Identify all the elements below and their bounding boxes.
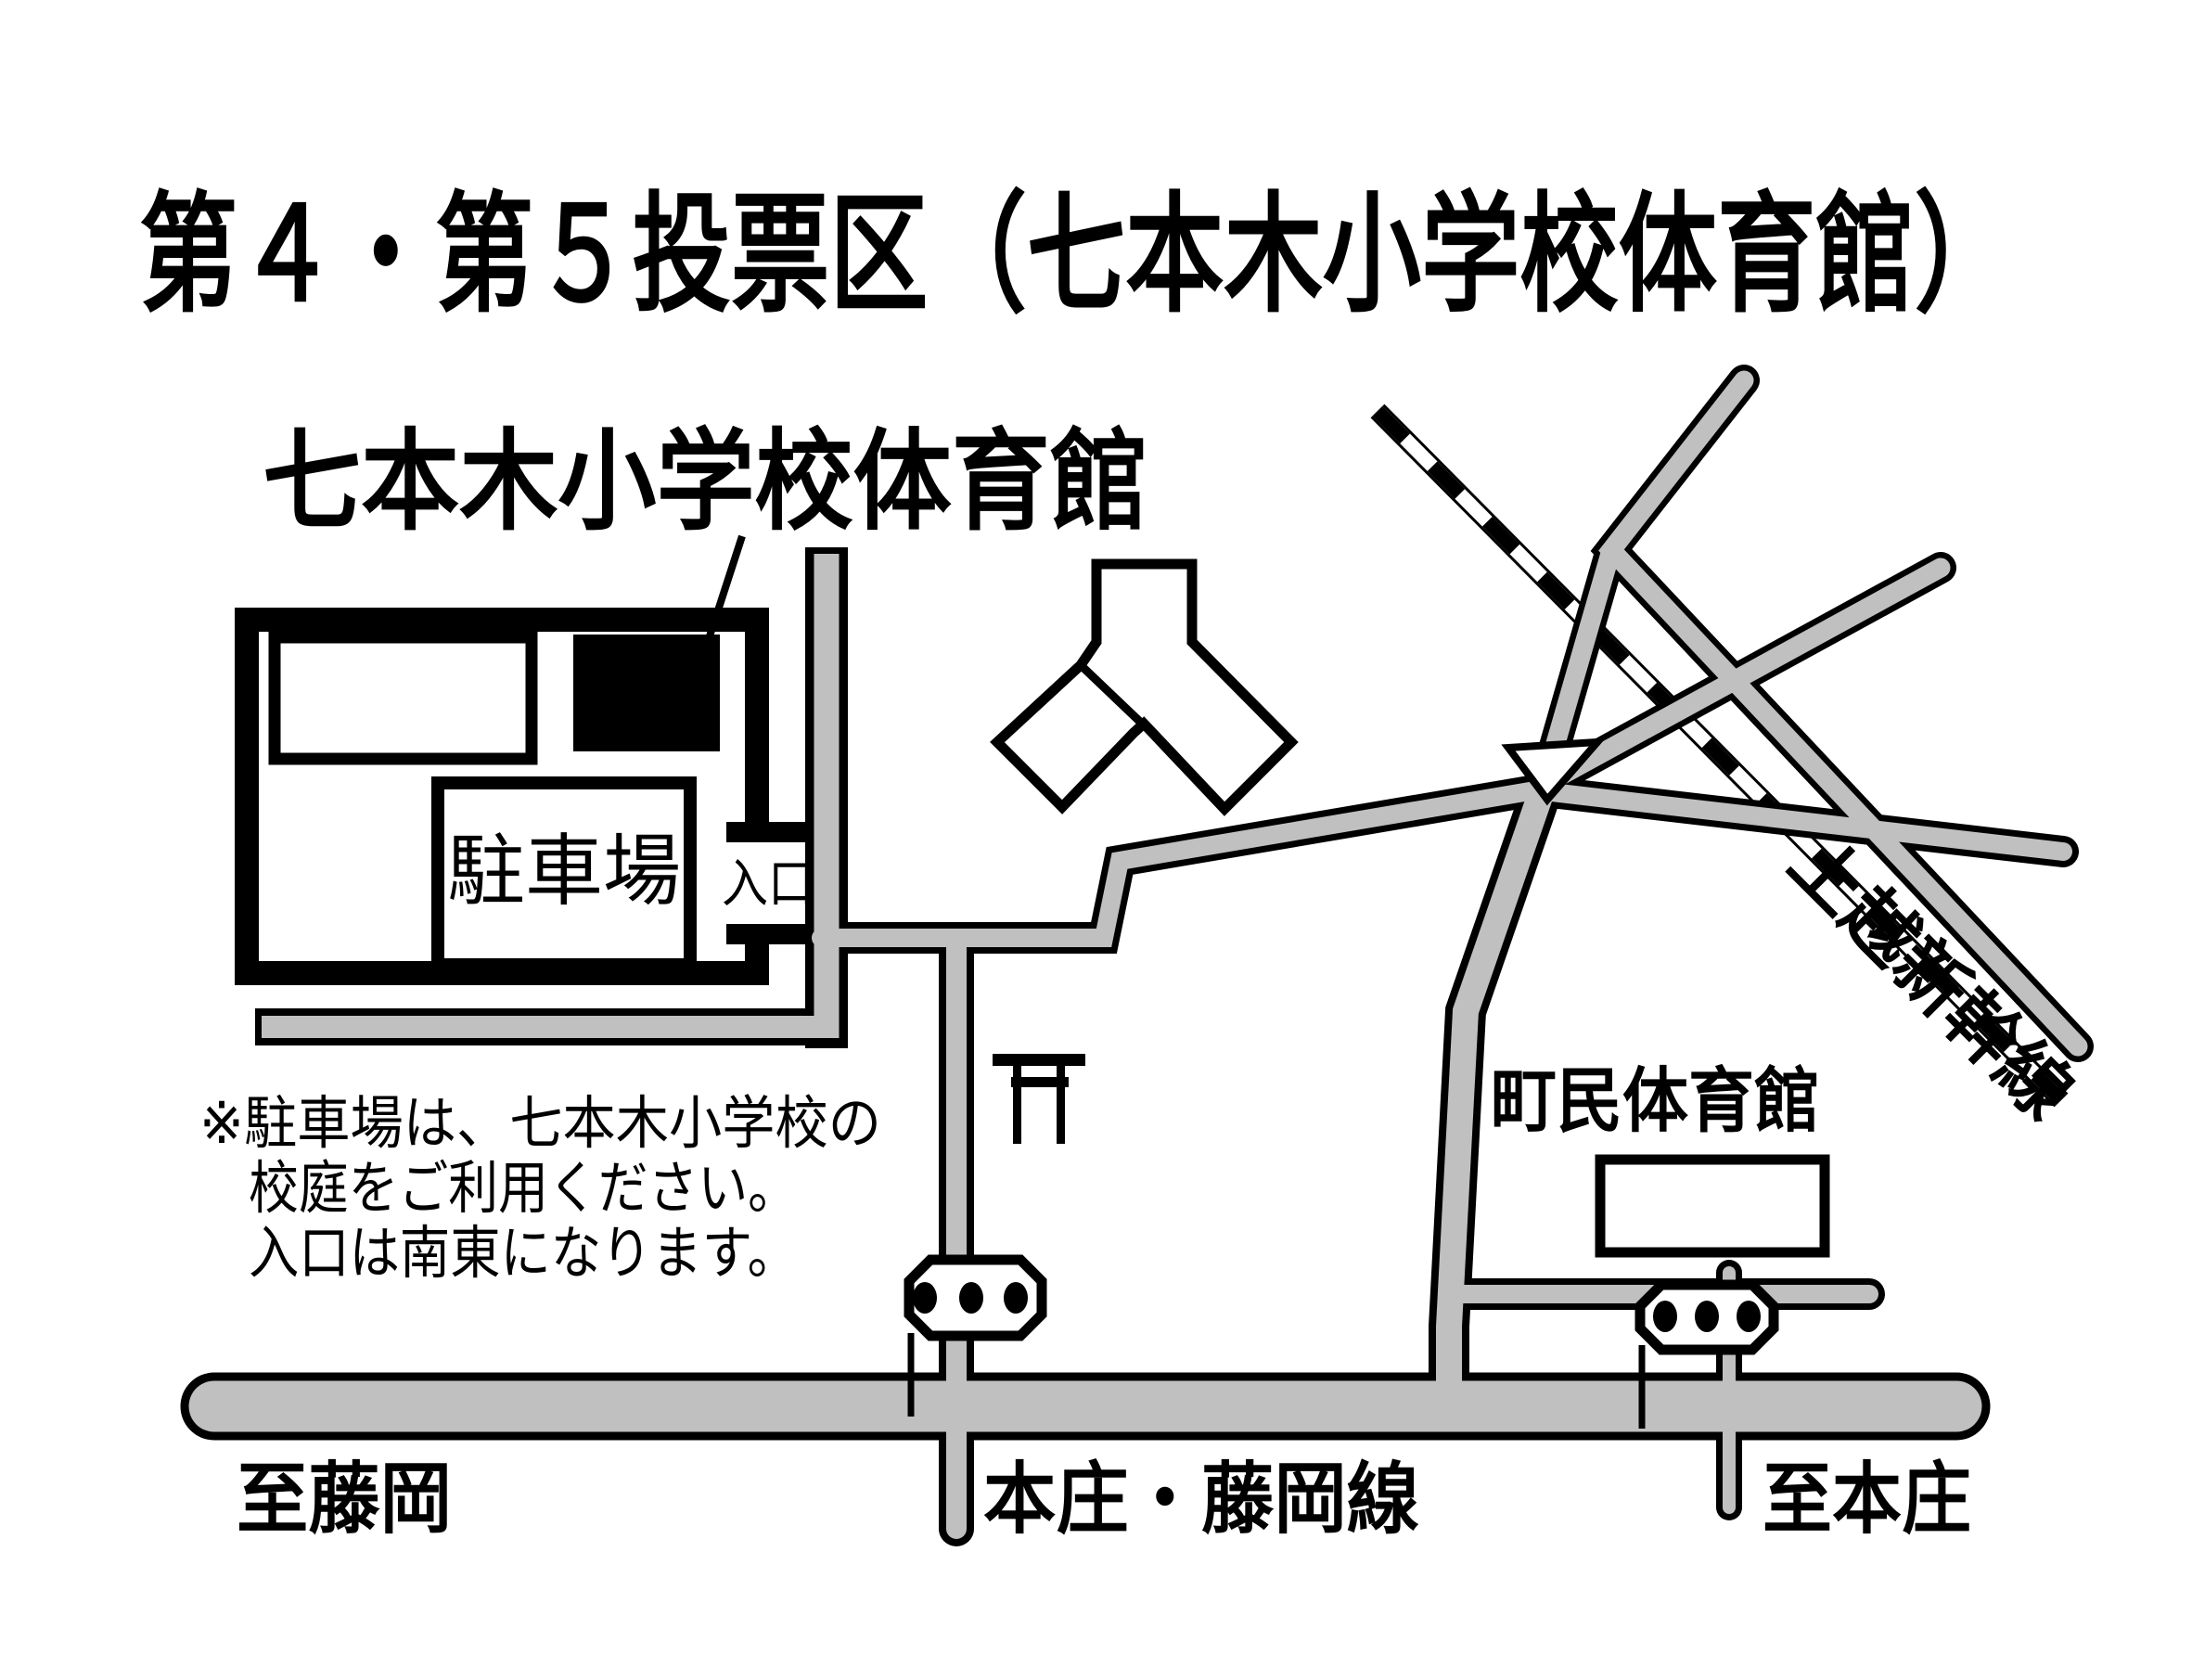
parking-note: ※駐車場は、七本木小学校の 校庭をご利用ください。 入口は南東になります。 — [199, 1089, 881, 1287]
town-gym-building — [1600, 1160, 1825, 1252]
map-page: 第４・第５投票区（七本木小学校体育館） 七本木小学校体育館 駐車場 入口 ※駐車… — [0, 0, 2192, 1680]
gymnasium-building-black — [573, 635, 720, 751]
school-gym-label: 七本木小学校体育館 — [263, 417, 1148, 545]
to-fujioka-label: 至藤岡 — [237, 1454, 452, 1545]
page-title: 第４・第５投票区（七本木小学校体育館） — [139, 180, 2013, 331]
town-gym-label: 町民体育館 — [1491, 1059, 1820, 1142]
entrance-label: 入口 — [722, 854, 814, 915]
route-name-label: 本庄・藤岡線 — [983, 1454, 1419, 1545]
parking-label: 駐車場 — [447, 826, 681, 917]
note-line-2: 校庭をご利用ください。 — [249, 1154, 798, 1222]
note-line-3: 入口は南東になります。 — [249, 1219, 798, 1287]
to-honjo-label: 至本庄 — [1763, 1454, 1971, 1545]
note-line-1: ※駐車場は、七本木小学校の — [199, 1089, 881, 1157]
school-building — [275, 637, 532, 759]
